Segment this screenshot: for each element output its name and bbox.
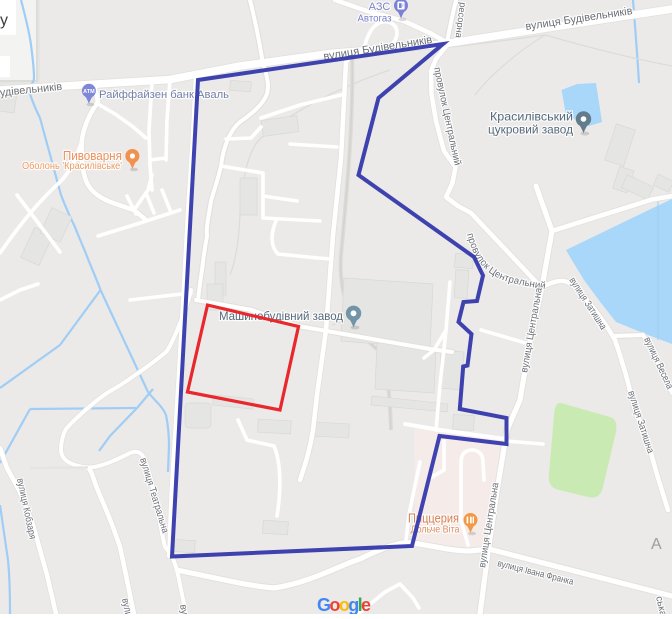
svg-text:Красилівський: Красилівський [490, 110, 573, 124]
svg-text:АЗС: АЗС [369, 1, 391, 13]
svg-text:Google: Google [317, 595, 371, 614]
svg-text:ATM: ATM [83, 89, 95, 95]
svg-text:А: А [651, 536, 662, 553]
svg-text:Оболонь 'Красилівське': Оболонь 'Красилівське' [22, 160, 122, 172]
svg-text:Автогаз: Автогаз [358, 14, 392, 25]
svg-text:у: у [0, 12, 8, 29]
svg-text:вул: вул [177, 604, 191, 614]
svg-text:цукровий завод: цукровий завод [488, 123, 573, 137]
svg-text:Райффайзен банк Аваль: Райффайзен банк Аваль [99, 89, 229, 101]
